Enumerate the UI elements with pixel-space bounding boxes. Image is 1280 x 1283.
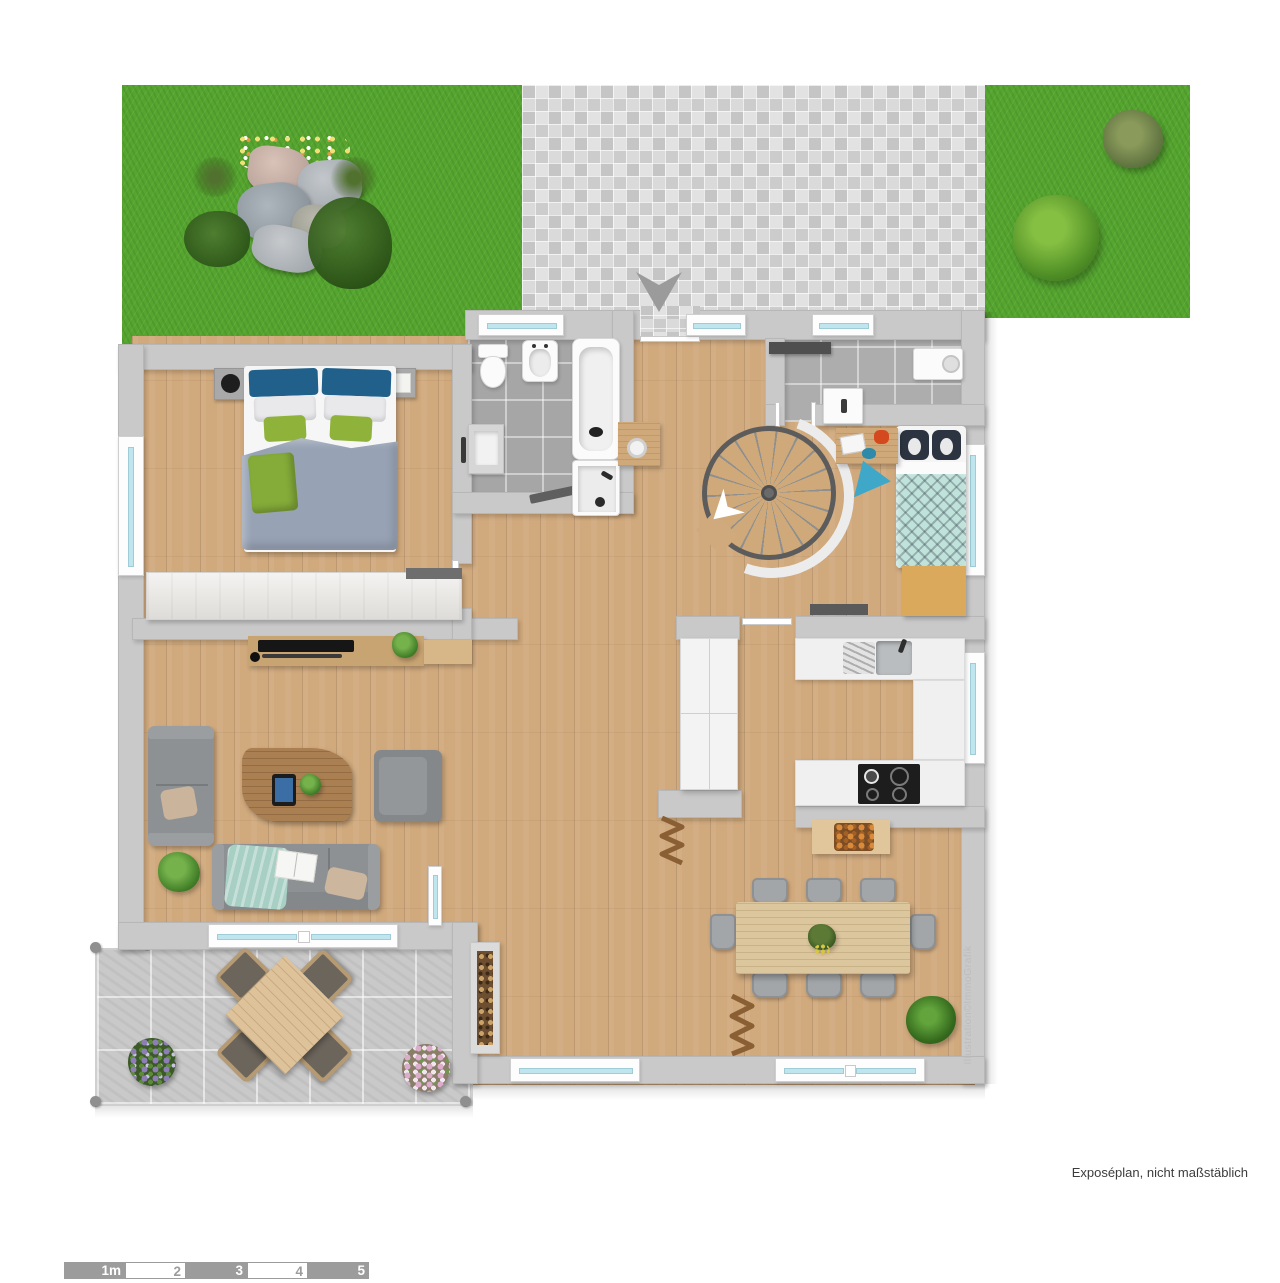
exterior-shadow-bottom bbox=[473, 1084, 985, 1100]
sideboard-plant bbox=[392, 632, 418, 658]
bathtub-faucet bbox=[589, 427, 603, 437]
entrance-threshold bbox=[640, 336, 700, 342]
armchair bbox=[374, 750, 442, 822]
floorplan-canvas: Illustration©ImmoGrafik Exposéplan, nich… bbox=[0, 0, 1280, 1283]
kids-sideboard-dark bbox=[810, 604, 868, 615]
faucet-dot bbox=[544, 344, 548, 348]
shrub bbox=[184, 211, 250, 267]
sink-faucet bbox=[898, 639, 907, 654]
shower bbox=[572, 460, 620, 516]
illustration-credit: Illustration©ImmoGrafik bbox=[962, 939, 976, 1071]
dining-window-south-left bbox=[510, 1058, 640, 1082]
wall-shelf-unit bbox=[470, 942, 500, 1054]
cooktop bbox=[858, 764, 920, 804]
toilet-bowl bbox=[480, 356, 506, 388]
vanity-cabinet bbox=[468, 424, 504, 474]
dining-area bbox=[700, 870, 965, 1060]
hall-side-cabinet bbox=[618, 422, 660, 466]
scale-segment: 1m bbox=[64, 1262, 125, 1279]
tray-decor bbox=[221, 374, 240, 393]
bed-cushion-green bbox=[263, 415, 306, 442]
wall-left bbox=[118, 344, 144, 950]
dining-chair bbox=[806, 878, 842, 904]
sofa-bottom bbox=[212, 844, 380, 910]
scale-segment: 4 bbox=[247, 1262, 308, 1279]
dining-chair bbox=[710, 914, 736, 950]
sofa-pillow-beige bbox=[160, 785, 199, 820]
tablet bbox=[272, 774, 296, 806]
dining-chair bbox=[806, 972, 842, 998]
table-plant bbox=[300, 774, 321, 795]
exterior-shadow-terrace bbox=[95, 1106, 473, 1118]
bathroom-window bbox=[478, 314, 564, 336]
plan-disclaimer-note: Exposéplan, nicht maßstäblich bbox=[1030, 1165, 1248, 1180]
terrace-dining-set bbox=[210, 945, 360, 1085]
bedroom-window bbox=[118, 436, 144, 576]
vanity-basin bbox=[474, 431, 498, 465]
dish-rack bbox=[843, 642, 875, 674]
tv-screen bbox=[258, 640, 354, 652]
flower-pot-pink bbox=[402, 1044, 450, 1092]
double-bed bbox=[244, 366, 396, 552]
dining-chair bbox=[910, 914, 936, 950]
garden-lawn-right bbox=[985, 85, 1190, 318]
exterior-shadow-right bbox=[985, 312, 998, 1084]
kids-bed bbox=[896, 426, 966, 568]
dining-table bbox=[736, 902, 910, 974]
bed-pillow-blue bbox=[249, 368, 319, 397]
vessel-bowl bbox=[627, 438, 647, 458]
utility-room bbox=[783, 338, 965, 422]
dining-chair bbox=[860, 878, 896, 904]
kitchen-sink bbox=[876, 641, 912, 675]
bed-pillow-blue bbox=[322, 368, 392, 397]
centerpiece-flowers bbox=[814, 944, 830, 956]
kids-room bbox=[790, 424, 965, 620]
wardrobe bbox=[146, 572, 462, 620]
logs bbox=[834, 823, 874, 851]
scale-segment: 2 bbox=[125, 1262, 186, 1279]
terrace-railing-post bbox=[90, 942, 101, 953]
open-book bbox=[274, 849, 318, 882]
shelf-contents bbox=[477, 951, 493, 1045]
speaker bbox=[250, 652, 260, 662]
tree-top bbox=[1103, 110, 1163, 168]
basin-bowl bbox=[529, 349, 551, 377]
dining-window-south-right bbox=[775, 1058, 925, 1082]
zigzag-decor-icon bbox=[726, 994, 760, 1056]
hall-window-north bbox=[686, 314, 746, 336]
toy-teal bbox=[862, 448, 876, 459]
washbasin bbox=[522, 340, 558, 382]
flower-pot-purple bbox=[128, 1038, 176, 1086]
penguin-pillow bbox=[900, 430, 929, 460]
kitchen-counter-right bbox=[913, 680, 965, 760]
bedroom bbox=[144, 368, 454, 620]
kids-sheet-fold bbox=[896, 462, 966, 474]
fridge-tall-unit bbox=[680, 638, 738, 790]
wardrobe-shelf-dark bbox=[406, 568, 462, 579]
sofa-left bbox=[148, 726, 214, 846]
soundbar bbox=[262, 654, 342, 658]
kidsroom-door-leaf bbox=[742, 618, 792, 625]
dining-floor-plant bbox=[906, 996, 956, 1044]
coffee-table bbox=[242, 748, 352, 822]
scale-segment: 5 bbox=[308, 1262, 369, 1279]
paved-courtyard bbox=[522, 85, 985, 320]
living-room bbox=[144, 632, 474, 922]
scale-segment: 3 bbox=[186, 1262, 247, 1279]
scale-bar: 1m 2 3 4 5 bbox=[64, 1262, 369, 1279]
floor-plant bbox=[158, 852, 200, 892]
penguin-pillow bbox=[932, 430, 961, 460]
bathtub bbox=[572, 338, 620, 460]
utility-sink bbox=[823, 388, 863, 424]
tv-sideboard-extension bbox=[424, 640, 472, 664]
bathroom bbox=[468, 340, 618, 512]
staircase-hub bbox=[761, 485, 777, 501]
utility-faucet bbox=[841, 399, 847, 413]
utility-window-north bbox=[812, 314, 874, 336]
bed-cushion-green bbox=[329, 415, 372, 442]
dining-chair bbox=[860, 972, 896, 998]
shrub bbox=[308, 197, 392, 289]
towel-bar bbox=[461, 437, 466, 463]
zigzag-decor-icon bbox=[654, 816, 694, 868]
log-basket bbox=[812, 820, 890, 854]
ornamental-grass bbox=[330, 157, 378, 199]
ornamental-grass bbox=[192, 157, 238, 197]
dining-chair bbox=[752, 878, 788, 904]
entrance-arrow-icon bbox=[636, 272, 682, 312]
kids-bench bbox=[902, 566, 966, 616]
utility-counter-dark bbox=[769, 342, 831, 354]
washing-machine bbox=[913, 348, 963, 380]
tree-bottom bbox=[1013, 195, 1099, 281]
rock-garden bbox=[180, 125, 390, 290]
toy-red bbox=[874, 430, 889, 444]
shower-drain bbox=[595, 497, 605, 507]
kitchen bbox=[658, 636, 965, 828]
faucet-dot bbox=[532, 344, 536, 348]
bed-throw-green bbox=[248, 452, 299, 514]
kids-duvet bbox=[896, 470, 966, 568]
washing-machine-door bbox=[942, 355, 960, 373]
